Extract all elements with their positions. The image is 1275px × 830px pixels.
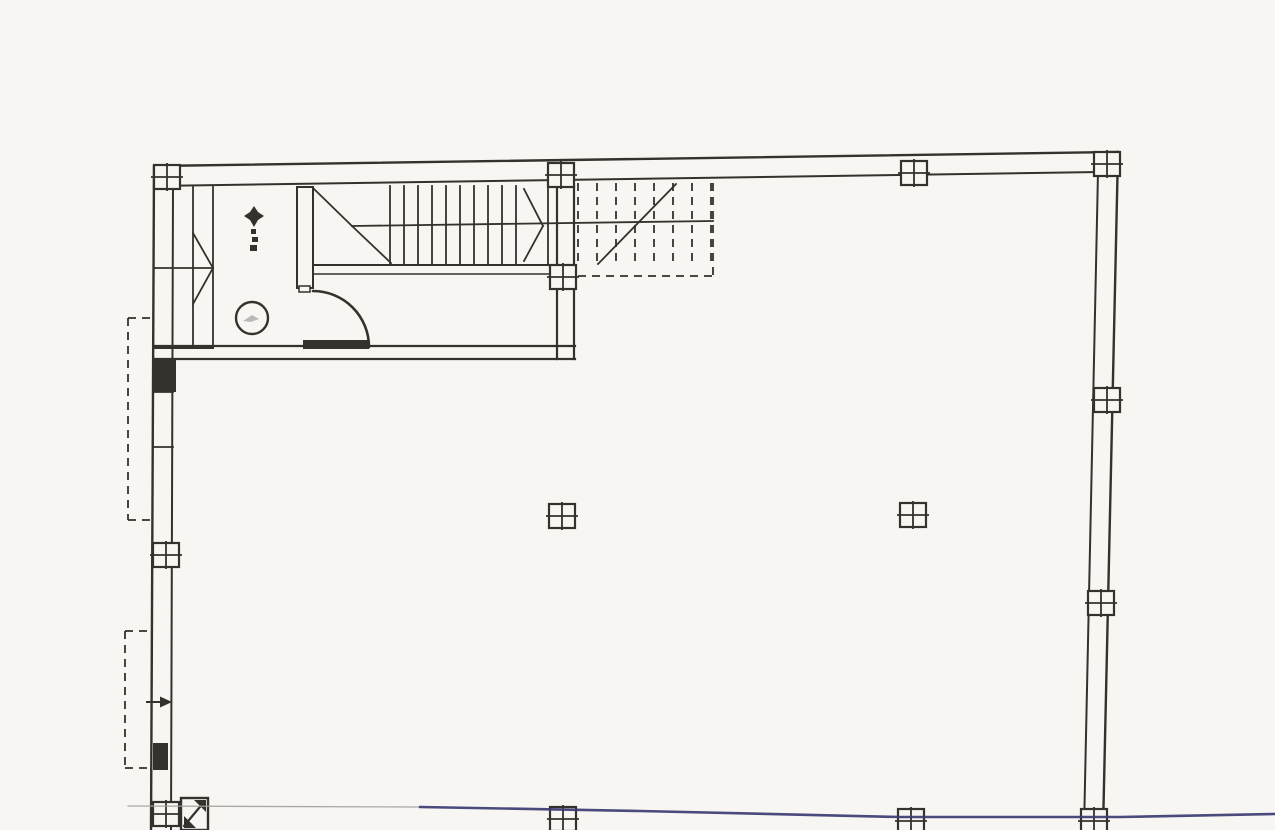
wall-pier: [153, 743, 168, 770]
level-text-smudge: [252, 237, 258, 242]
door-jamb: [297, 187, 313, 288]
wall-pier: [154, 360, 176, 392]
paper-background: [0, 0, 1275, 830]
floor-plan-drawing: [0, 0, 1275, 830]
floor-plan-scan-page: [0, 0, 1275, 830]
door-leaf: [303, 340, 369, 349]
level-text-smudge: [250, 245, 257, 251]
door-jamb-foot: [299, 286, 310, 292]
level-text-smudge: [251, 229, 256, 234]
